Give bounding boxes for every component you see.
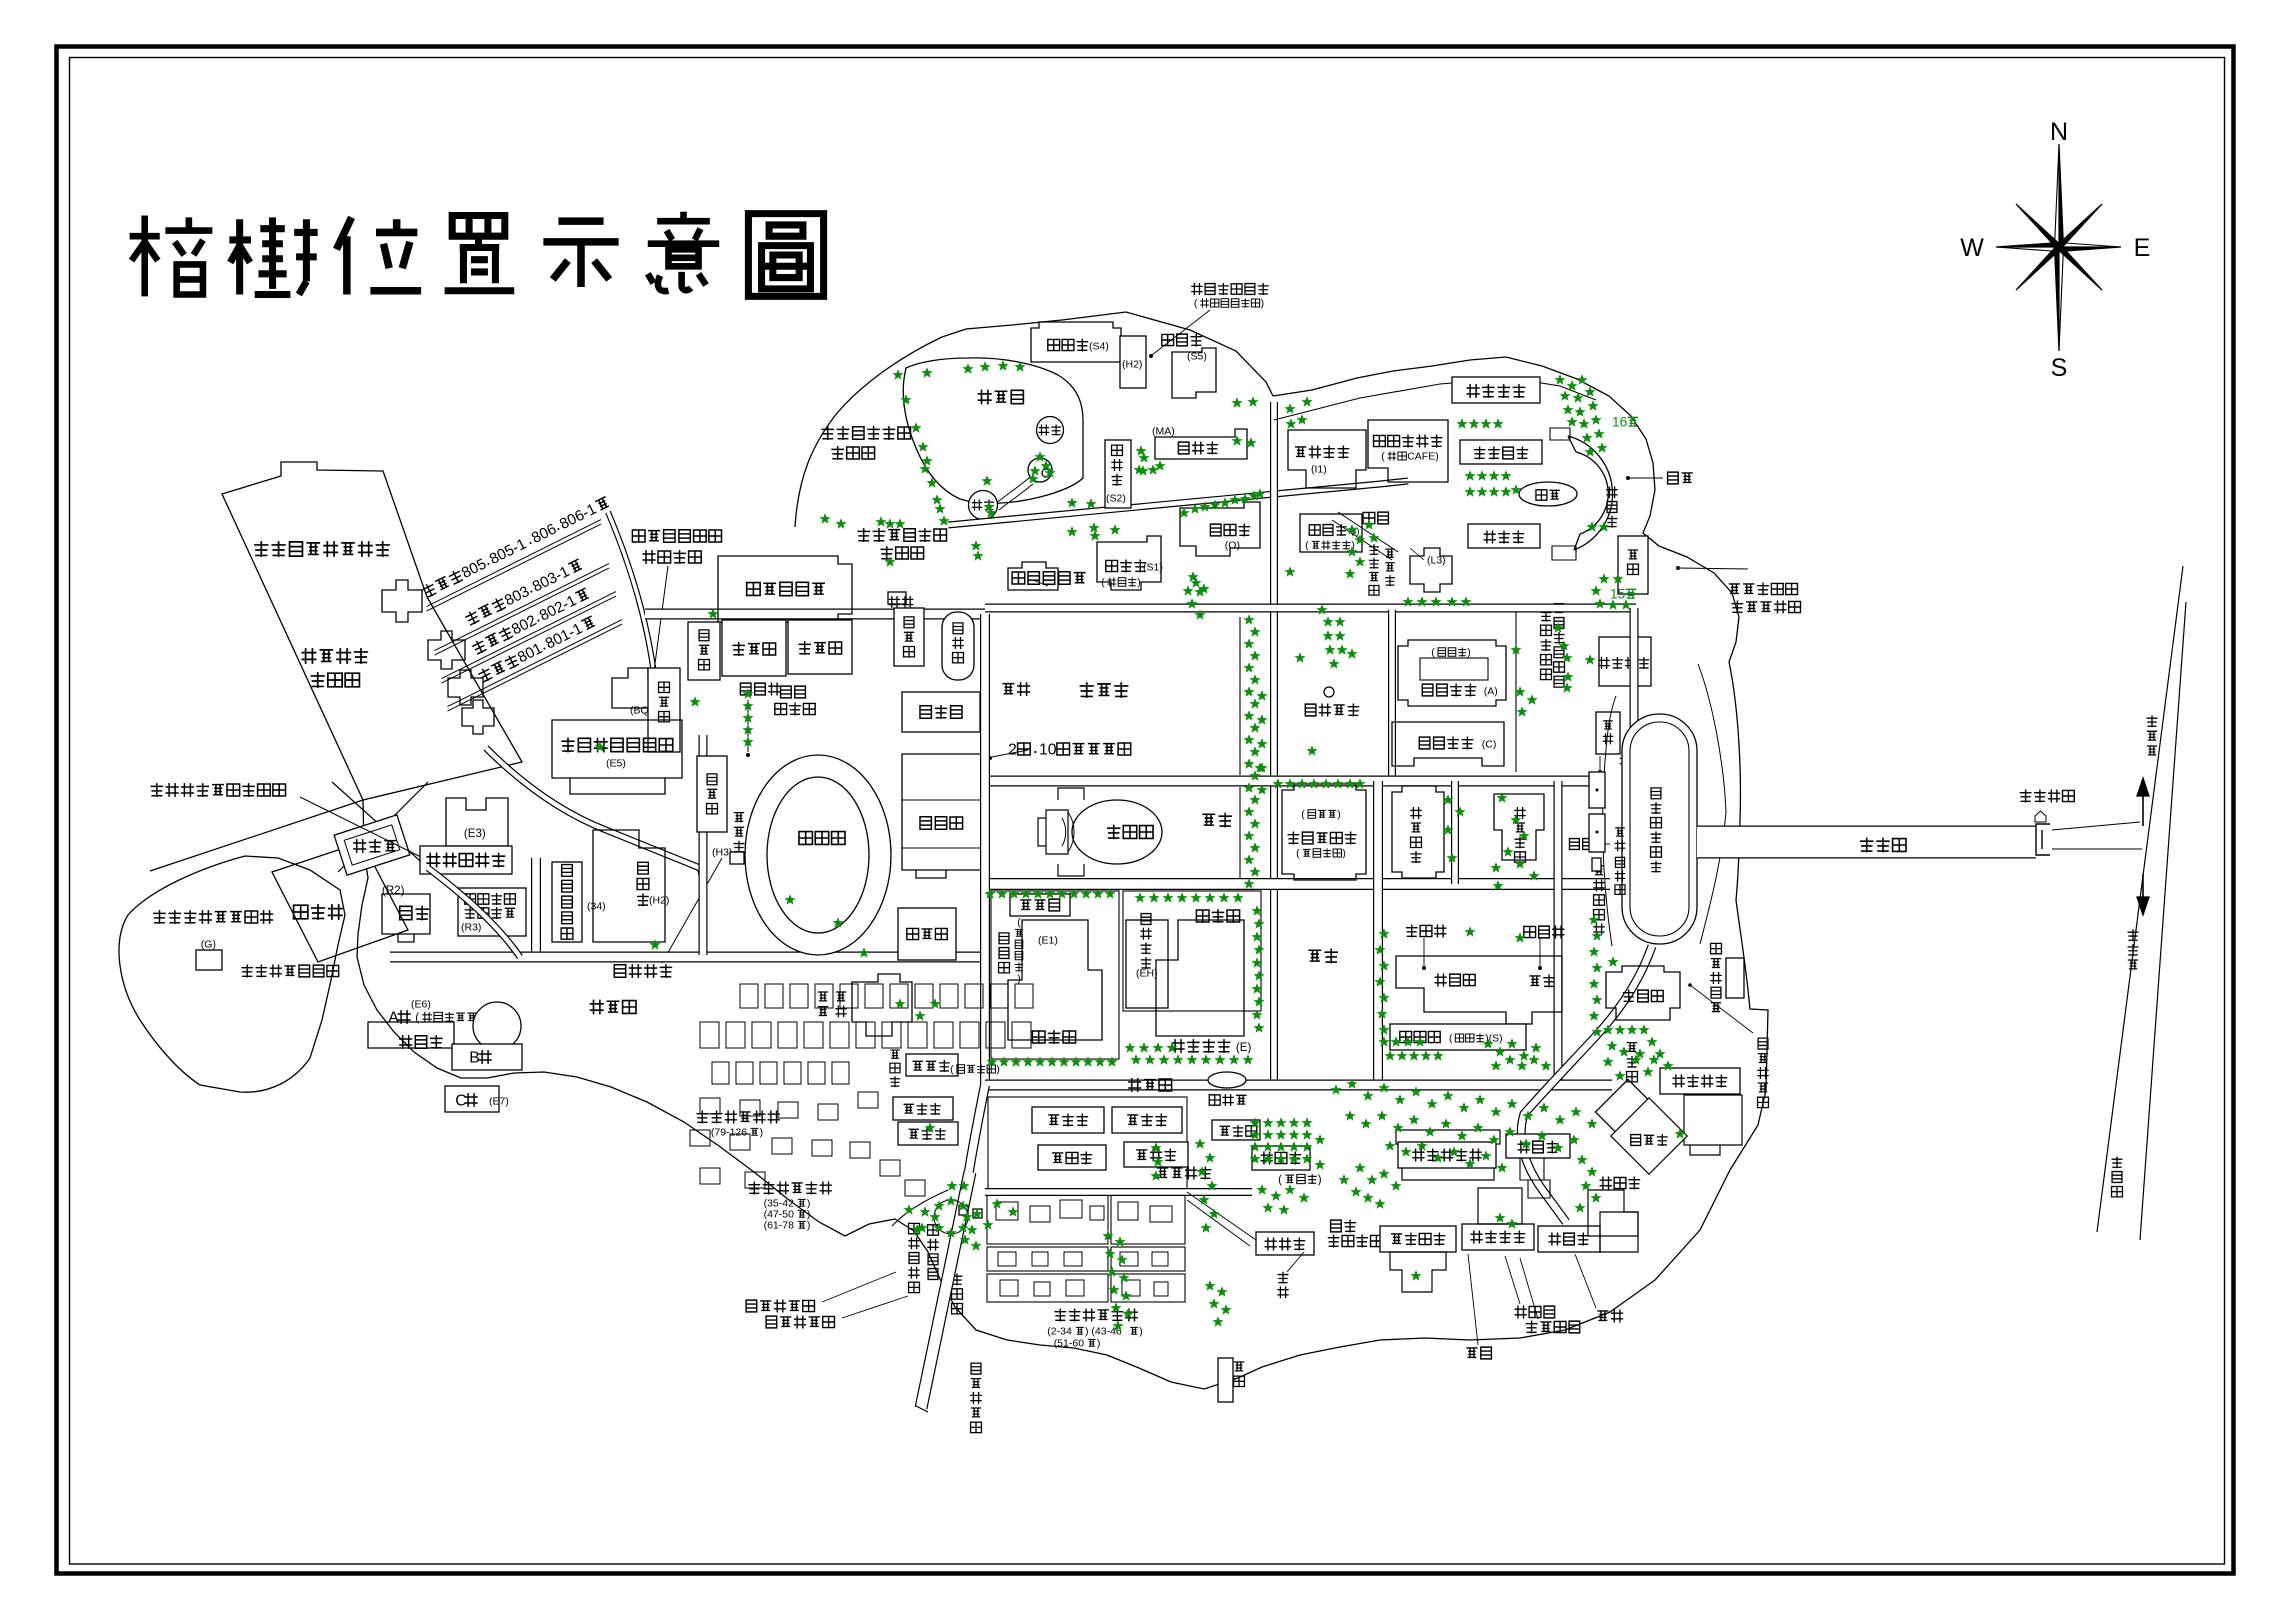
svg-text:(R2): (R2) <box>382 884 405 897</box>
svg-text:): ) <box>996 1064 1000 1076</box>
svg-text:W: W <box>1960 234 1984 262</box>
svg-text:(E3): (E3) <box>464 827 486 840</box>
svg-text:(G): (G) <box>201 939 216 951</box>
svg-text:2: 2 <box>1008 741 1017 758</box>
svg-text:(: ( <box>1305 540 1309 552</box>
svg-text:(R3): (R3) <box>461 922 481 934</box>
svg-text:(O): (O) <box>1225 540 1240 552</box>
svg-text:10: 10 <box>1039 741 1057 758</box>
svg-text:(L3): (L3) <box>1427 555 1446 567</box>
svg-text:(79-126: (79-126 <box>711 1127 747 1139</box>
svg-text:C: C <box>455 1092 466 1109</box>
svg-text:(: ( <box>1194 298 1198 310</box>
svg-text:(S4): (S4) <box>1089 341 1109 353</box>
svg-text:(: ( <box>1278 1173 1282 1186</box>
svg-text:(: ( <box>950 1064 954 1076</box>
svg-text:(: ( <box>1296 848 1300 860</box>
svg-text:(E6): (E6) <box>411 999 431 1011</box>
svg-text:(: ( <box>1301 809 1305 821</box>
svg-text:CAFE): CAFE) <box>1407 451 1439 463</box>
svg-text:): ) <box>1097 1338 1101 1350</box>
svg-text:(: ( <box>415 1011 419 1024</box>
svg-text:): ) <box>1467 647 1471 659</box>
svg-text:S: S <box>2051 354 2068 382</box>
svg-text:(: ( <box>1381 451 1385 463</box>
svg-text:B: B <box>469 1049 480 1066</box>
svg-text:): ) <box>1139 1326 1143 1338</box>
svg-text:): ) <box>1017 973 1021 985</box>
svg-text:): ) <box>807 1220 811 1232</box>
svg-text:(34): (34) <box>587 901 606 913</box>
svg-text:(E): (E) <box>1236 1041 1252 1054</box>
svg-text:15: 15 <box>1610 587 1626 602</box>
svg-text:(S1): (S1) <box>1143 562 1163 574</box>
svg-text:(A): (A) <box>1484 686 1498 698</box>
svg-text:(H2): (H2) <box>649 895 669 907</box>
svg-text:(C): (C) <box>1482 739 1497 751</box>
svg-text:): ) <box>1342 848 1346 860</box>
svg-text:(E1): (E1) <box>1038 935 1058 947</box>
svg-text:(EH): (EH) <box>1136 968 1158 980</box>
svg-text:(2-34: (2-34 <box>1047 1326 1072 1338</box>
svg-text:(MA): (MA) <box>1152 426 1175 438</box>
svg-text:): ) <box>1261 298 1265 310</box>
svg-text:16: 16 <box>1612 415 1628 430</box>
svg-text:(: ( <box>1101 577 1105 589</box>
svg-text:): ) <box>1318 1173 1322 1186</box>
svg-text:): ) <box>1137 577 1141 589</box>
svg-text:A: A <box>388 1009 399 1026</box>
svg-text:(S5): (S5) <box>1187 351 1207 363</box>
svg-text:(I1): (I1) <box>1311 464 1327 476</box>
svg-text:): ) <box>760 1127 764 1139</box>
svg-text:(51-60: (51-60 <box>1054 1338 1085 1350</box>
svg-text:(S2): (S2) <box>1106 493 1126 505</box>
svg-text:(H2): (H2) <box>1122 359 1142 371</box>
svg-text:(E5): (E5) <box>606 758 626 770</box>
svg-text:E: E <box>2134 234 2151 262</box>
svg-text:(61-78: (61-78 <box>764 1220 795 1232</box>
svg-text:): ) <box>1337 809 1341 821</box>
svg-text:N: N <box>2050 118 2068 146</box>
svg-text:(E7): (E7) <box>489 1096 509 1108</box>
svg-text:(: ( <box>1449 1033 1453 1045</box>
svg-text:(: ( <box>1431 647 1435 659</box>
svg-text:(: ( <box>1017 916 1021 928</box>
